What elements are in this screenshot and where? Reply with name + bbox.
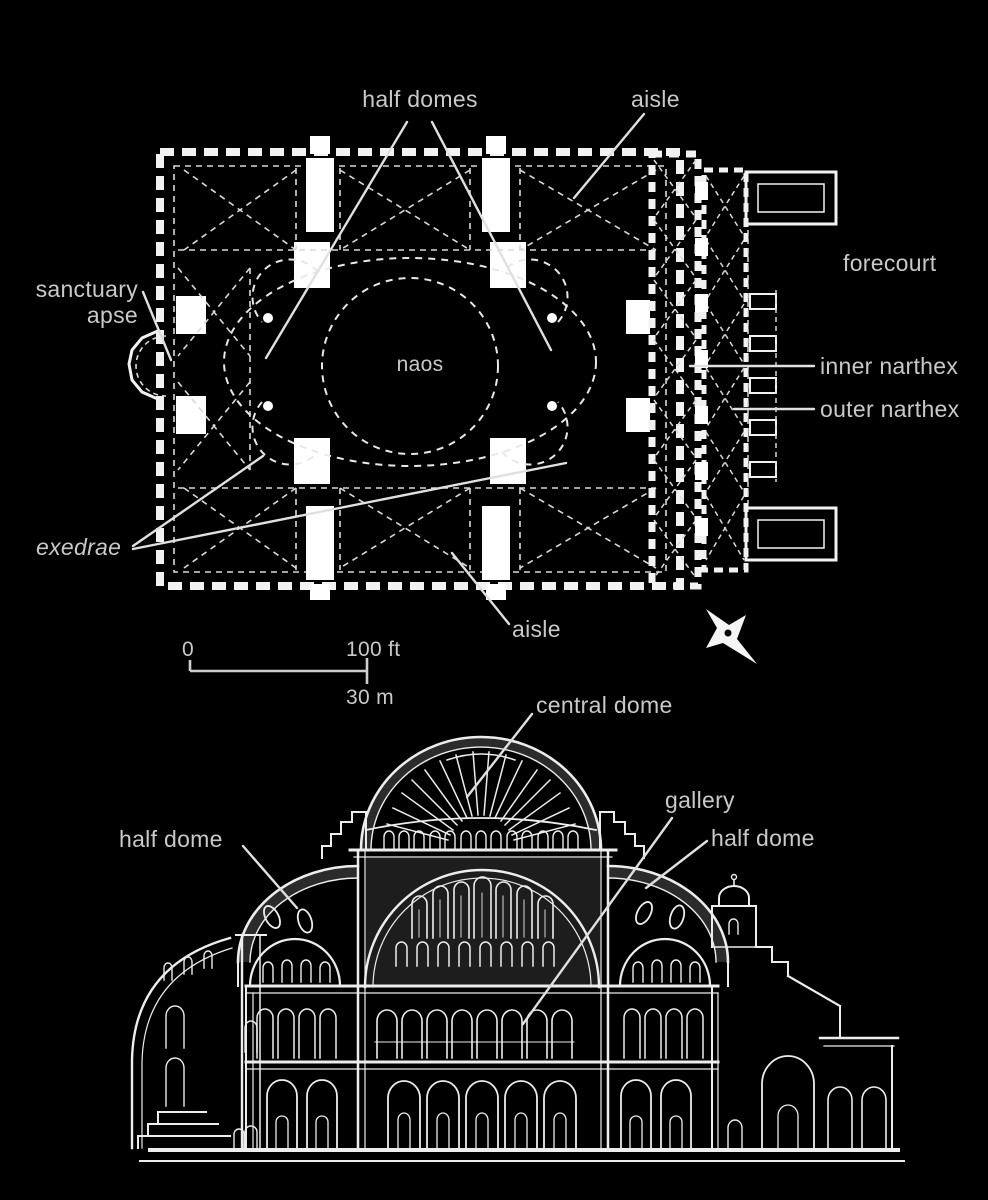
label-inner-narthex: inner narthex bbox=[820, 353, 958, 379]
label-exedrae: exedrae bbox=[36, 534, 121, 560]
hagia-sophia-diagram: half domes aisle forecourt sanctuary aps… bbox=[0, 0, 988, 1200]
scale-bar-zero: 0 bbox=[182, 637, 194, 663]
label-aisle-bottom: aisle bbox=[512, 616, 561, 642]
label-forecourt: forecourt bbox=[843, 250, 936, 276]
label-half-domes: half domes bbox=[310, 86, 530, 112]
label-central-dome: central dome bbox=[536, 692, 673, 718]
scale-bar-feet: 100 ft bbox=[346, 637, 400, 663]
scale-bar bbox=[190, 658, 367, 684]
scale-bar-meters: 30 m bbox=[346, 685, 394, 711]
label-outer-narthex: outer narthex bbox=[820, 396, 959, 422]
diagram-artwork bbox=[0, 0, 988, 1200]
label-half-dome-left: half dome bbox=[119, 826, 223, 852]
label-gallery: gallery bbox=[665, 787, 735, 813]
label-sanctuary-line2: apse bbox=[87, 302, 138, 328]
label-sanctuary-line1: sanctuary bbox=[36, 276, 138, 302]
label-naos: naos bbox=[370, 352, 470, 378]
floor-plan-drawing bbox=[129, 136, 836, 600]
compass-rose-icon bbox=[706, 609, 757, 664]
floor-plan-leader-lines bbox=[133, 114, 814, 624]
label-sanctuary-apse: sanctuary apse bbox=[16, 276, 138, 328]
label-aisle-top: aisle bbox=[631, 86, 680, 112]
label-half-dome-right: half dome bbox=[711, 825, 815, 851]
section-drawing bbox=[132, 737, 904, 1161]
